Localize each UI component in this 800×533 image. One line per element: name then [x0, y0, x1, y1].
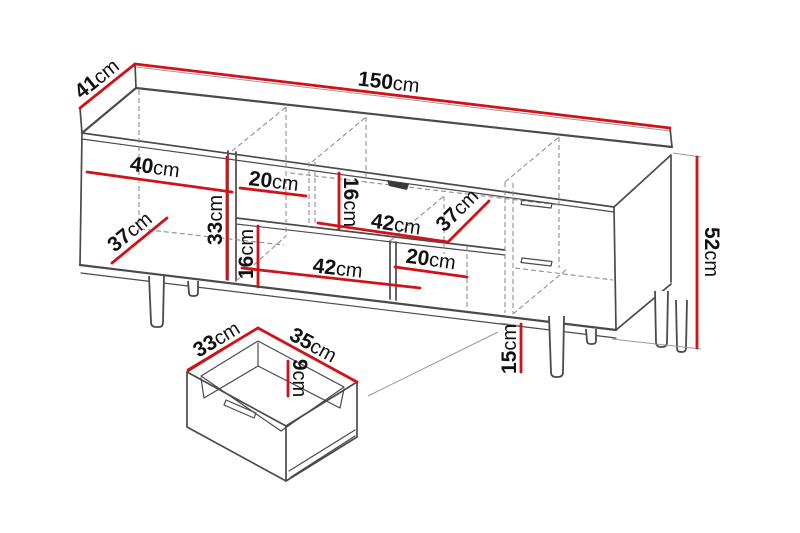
dimension-label-upper-middle-width: 20cm	[248, 167, 300, 196]
furniture-dimension-diagram: 150cm41cm52cm40cm20cm16cm42cm37cm37cm33c…	[0, 0, 800, 533]
leg-back-left	[188, 281, 198, 296]
diagram-canvas: 150cm41cm52cm40cm20cm16cm42cm37cm37cm33c…	[0, 0, 800, 533]
leg-front-left	[149, 276, 164, 327]
cabinet-outline	[80, 64, 672, 338]
extension-lines	[368, 153, 701, 396]
dimension-label-drawer-height: 9cm	[288, 359, 311, 397]
dimension-label-leg-height: 15cm	[498, 324, 521, 374]
dimension-label-lower-middle-width: 42cm	[312, 254, 364, 282]
leg-front-right	[549, 316, 564, 377]
dimension-label-upper-middle-height: 16cm	[339, 177, 362, 227]
dimension-label-lower-middle-height: 16cm	[235, 229, 258, 279]
dimension-label-total-height: 52cm	[700, 227, 723, 277]
drawer-rail-lines	[289, 430, 355, 477]
leg-back-right	[586, 329, 596, 344]
drawer-handle-slot-lower	[521, 258, 552, 266]
dimension-label-total-width: 150cm	[357, 67, 421, 97]
leg-side-right-back	[676, 300, 687, 352]
flap-handle-notch	[387, 180, 409, 190]
dimension-label-middle-shelf-depth: 37cm	[432, 185, 484, 237]
leg-side-right	[655, 291, 668, 347]
dimension-annotations: 150cm41cm52cm40cm20cm16cm42cm37cm37cm33c…	[70, 54, 723, 397]
dimension-label-left-compartment-height: 33cm	[204, 195, 227, 245]
dimension-label-drawer-depth: 33cm	[189, 317, 244, 362]
